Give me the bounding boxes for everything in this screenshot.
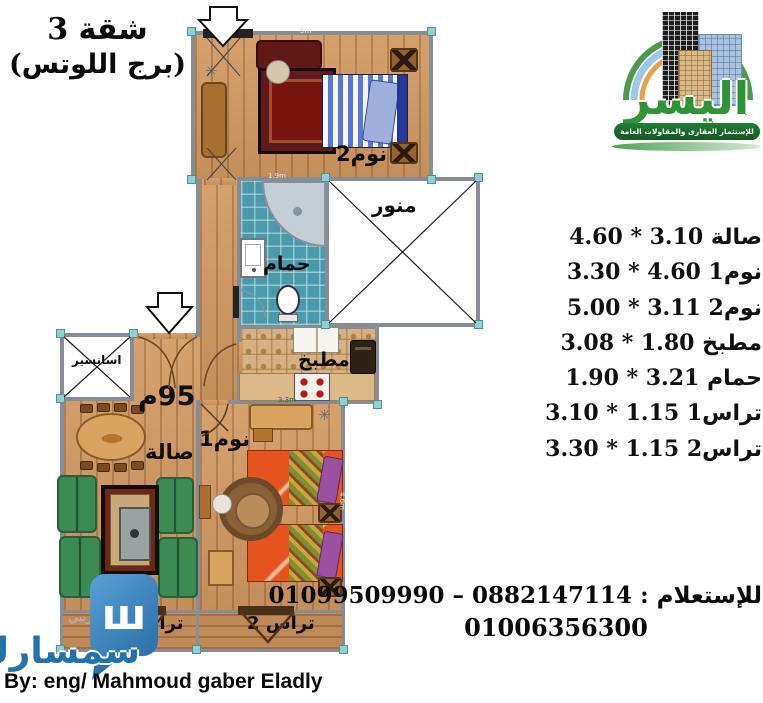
- dining-chair: [131, 461, 144, 470]
- wall-node: [56, 394, 65, 403]
- bedroom2-bed: [322, 74, 408, 148]
- label-bathroom: حمام: [263, 253, 311, 275]
- dining-table: [76, 413, 146, 461]
- dimension-row: صالة 3.10 * 4.60: [516, 220, 762, 255]
- label-kitchen: مطبخ: [298, 349, 350, 371]
- wall-node: [339, 645, 348, 654]
- logo-brand-text: اليسر: [612, 76, 762, 121]
- wall-node: [339, 397, 348, 406]
- wall-node: [321, 320, 330, 329]
- contact-line2: 01006356300: [350, 613, 762, 642]
- plant-icon: ✳: [318, 406, 331, 424]
- wall-node: [187, 175, 196, 184]
- hall-rug: [101, 485, 159, 575]
- bathroom-door-dark-bar: [233, 286, 239, 318]
- label-area: 95م: [138, 381, 195, 412]
- watermark-brand: سمسارك: [0, 634, 140, 670]
- toilet-tank: [278, 314, 298, 322]
- kitchen-door-opening: [237, 342, 242, 372]
- wall-dim-bath: 1.9m: [268, 172, 286, 180]
- bedroom2-entry-threshold: [203, 29, 253, 38]
- label-hall: صالة: [145, 440, 194, 464]
- bedroom1-wardrobe: [249, 404, 313, 430]
- building-title: (برج اللوتس): [5, 49, 190, 80]
- bed-headboard: [397, 75, 407, 149]
- dimension-row: نوم2 3.11 * 5.00: [516, 291, 762, 326]
- wall-node: [192, 645, 201, 654]
- entrance-arrow-icon: [147, 293, 192, 333]
- label-lightwell: منور: [372, 193, 417, 217]
- wall-dim-bedroom1: 4.6m: [338, 492, 346, 510]
- dining-chair: [97, 463, 110, 472]
- wall-node: [427, 175, 436, 184]
- flyer-canvas: شقة 3 (برج اللوتس) اليسر للإستثمار العقا…: [0, 0, 763, 703]
- wall-node: [474, 173, 483, 182]
- bedroom2-corridor-opening: [204, 178, 236, 185]
- watermark-icon-glyph: ш: [102, 594, 147, 636]
- credit-line: By: eng/ Mahmoud gaber Eladly: [4, 670, 323, 694]
- wall-node: [56, 329, 65, 338]
- wall-node: [474, 320, 483, 329]
- label-terrace2: تراس 2: [247, 613, 315, 634]
- hall-sofa: [158, 537, 198, 598]
- hall-entry-opening: [137, 333, 195, 339]
- fridge: [350, 340, 376, 374]
- dimension-row: مطبخ 1.80 * 3.08: [516, 326, 762, 361]
- wall-dim-kitchen: 3.3m: [278, 396, 296, 404]
- toilet: [276, 285, 300, 315]
- label-bedroom2: نوم2: [336, 142, 387, 166]
- dimension-row: نوم1 4.60 * 3.30: [516, 255, 762, 290]
- dining-chair: [80, 404, 93, 413]
- company-logo: اليسر للإستثمار العقارى والمقاولات العام…: [612, 4, 762, 154]
- plant-icon: ✳: [205, 62, 218, 80]
- apartment-title: شقة 3: [5, 12, 190, 47]
- title-block: شقة 3 (برج اللوتس): [5, 12, 190, 80]
- bedroom1-pouf: [212, 494, 232, 514]
- bedroom1-door-opening: [201, 400, 228, 405]
- contact-block: للإستعلام : 0882147114 – 01099509990 010…: [350, 582, 762, 642]
- dimension-row: تراس1 1.15 * 3.10: [516, 396, 762, 431]
- dimension-row: تراس2 1.15 * 3.30: [516, 432, 762, 467]
- bedroom2-stool: [266, 60, 290, 84]
- elevator-shaft: [60, 333, 134, 401]
- bedroom1-shelf: [199, 485, 211, 519]
- dining-chair: [80, 461, 93, 470]
- bedroom2-dresser: [256, 40, 322, 70]
- dining-chair: [114, 463, 127, 472]
- label-bedroom1: نوم1: [199, 427, 250, 451]
- bed-pillow: [362, 79, 400, 145]
- bedroom2-nightstand-bottom: [390, 142, 418, 164]
- stove: [294, 373, 330, 401]
- wall-node: [427, 27, 436, 36]
- wall-node: [321, 173, 330, 182]
- bedroom2-nightstand-top: [390, 48, 418, 72]
- bedroom1-side-table: [253, 428, 273, 442]
- dining-chair: [114, 403, 127, 412]
- wall-node: [373, 400, 382, 409]
- label-elevator: اسانسير: [72, 353, 122, 367]
- bedroom1-desk: [208, 550, 234, 586]
- logo-swoosh: [612, 142, 762, 151]
- dining-chair: [97, 403, 110, 412]
- hall-sofa: [156, 477, 194, 534]
- dimension-row: حمام 3.21 * 1.90: [516, 361, 762, 396]
- contact-line1: للإستعلام : 0882147114 – 01099509990: [350, 582, 762, 609]
- logo-tagline: للإستثمار العقارى والمقاولات العامة: [614, 123, 760, 140]
- dimensions-list: صالة 3.10 * 4.60 نوم1 4.60 * 3.30 نوم2 3…: [516, 220, 762, 467]
- hall-sofa: [57, 475, 97, 533]
- wall-dim-top: 5m: [300, 27, 311, 35]
- bedroom2-wardrobe: [201, 82, 227, 158]
